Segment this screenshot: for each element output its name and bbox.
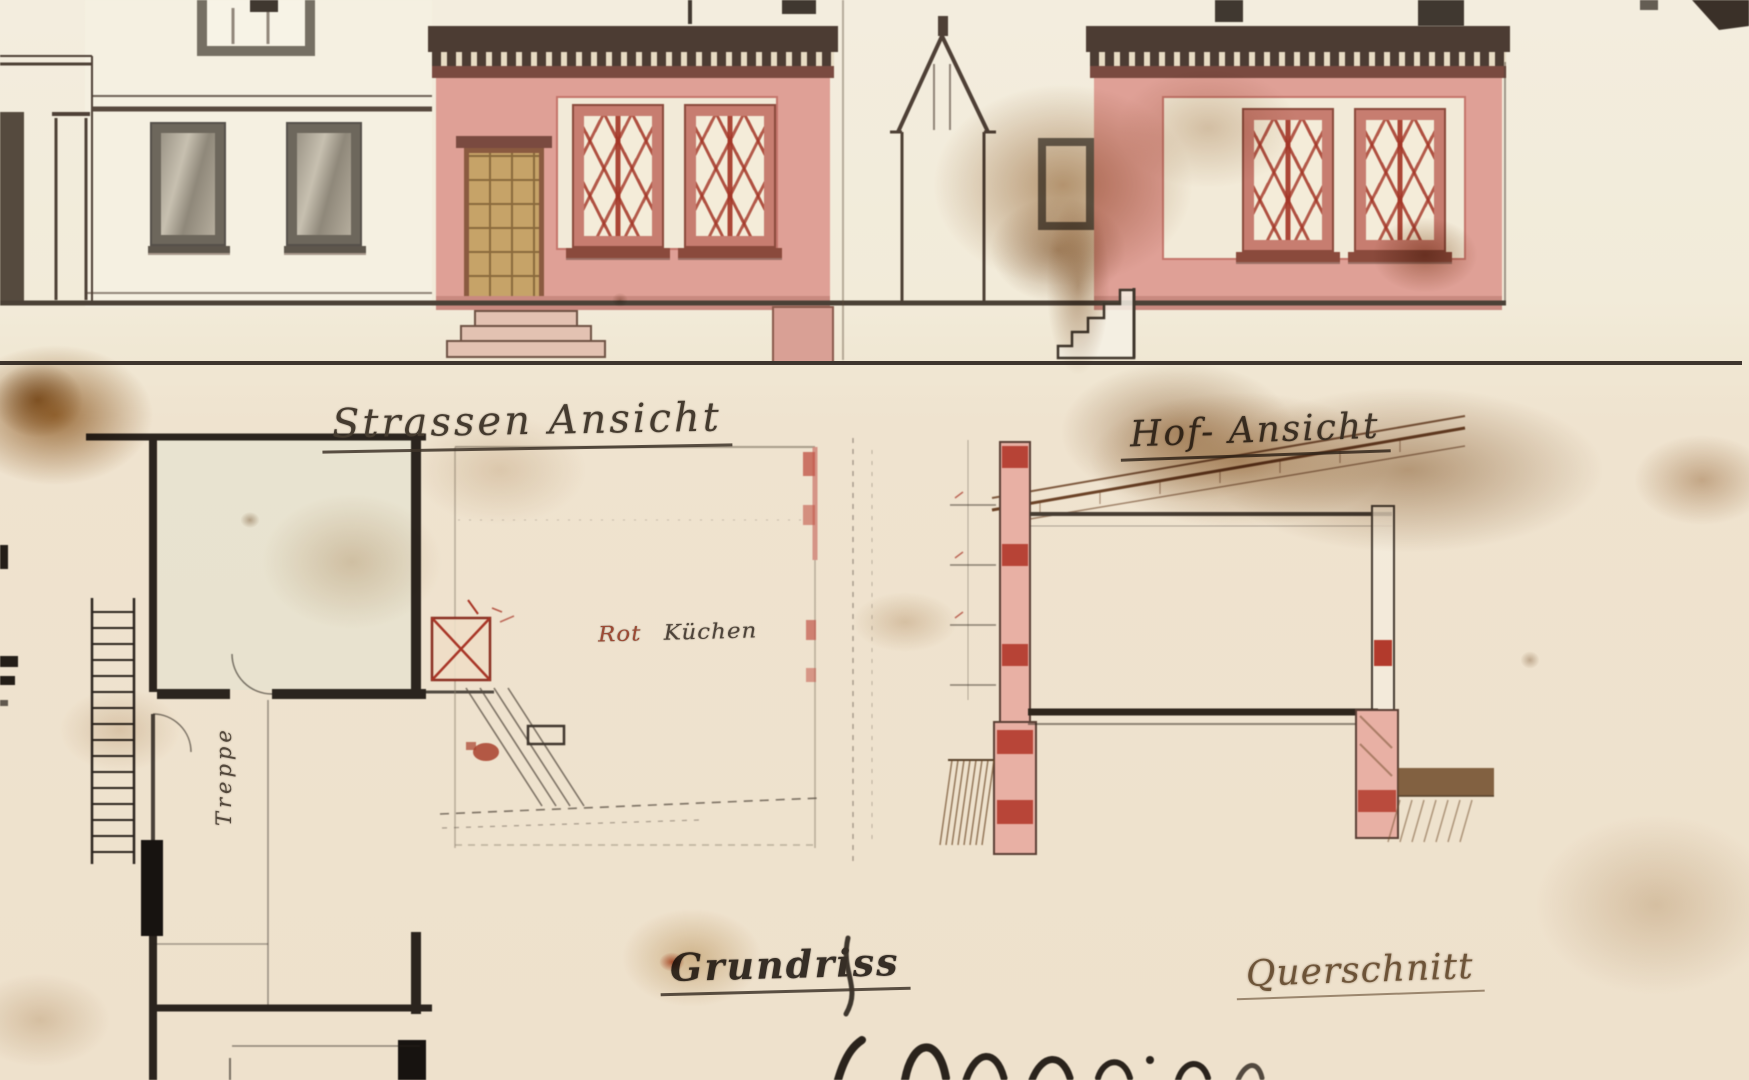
label-street-elevation-text: Strassen Ansicht — [322, 394, 733, 453]
note-kitchen: Rot Küchen — [598, 619, 758, 647]
scanned-drawing-sheet: Strassen Ansicht Hof- Ansicht Grundriss … — [0, 0, 1749, 1080]
drawing-linework — [0, 0, 1749, 1080]
elevation-projection — [432, 438, 872, 864]
note-stair-vertical-text: Treppe — [212, 726, 236, 826]
floor-plan — [86, 437, 494, 1080]
staircase — [92, 598, 134, 864]
label-floor-plan-text: Grundriss — [659, 939, 910, 997]
left-margin-marks — [0, 545, 18, 706]
ground-line — [0, 0, 1506, 360]
label-street-elevation: Strassen Ansicht — [322, 394, 733, 453]
right-house-steps — [1058, 288, 1134, 358]
label-cross-section: Querschnitt — [1235, 946, 1484, 1001]
note-stair-vertical: Treppe — [212, 676, 236, 826]
left-building-linework — [0, 8, 432, 304]
cross-section — [940, 416, 1494, 854]
label-cross-section-text: Querschnitt — [1235, 946, 1484, 1001]
top-edge-fragments — [250, 0, 1749, 30]
note-kitchen-word2: Küchen — [663, 619, 757, 645]
label-courtyard-elevation-text: Hof- Ansicht — [1119, 405, 1390, 461]
note-kitchen-word1: Rot — [598, 622, 642, 647]
gable-linework — [890, 16, 996, 302]
label-courtyard-elevation: Hof- Ansicht — [1119, 405, 1390, 461]
label-floor-plan: Grundriss — [659, 939, 910, 997]
